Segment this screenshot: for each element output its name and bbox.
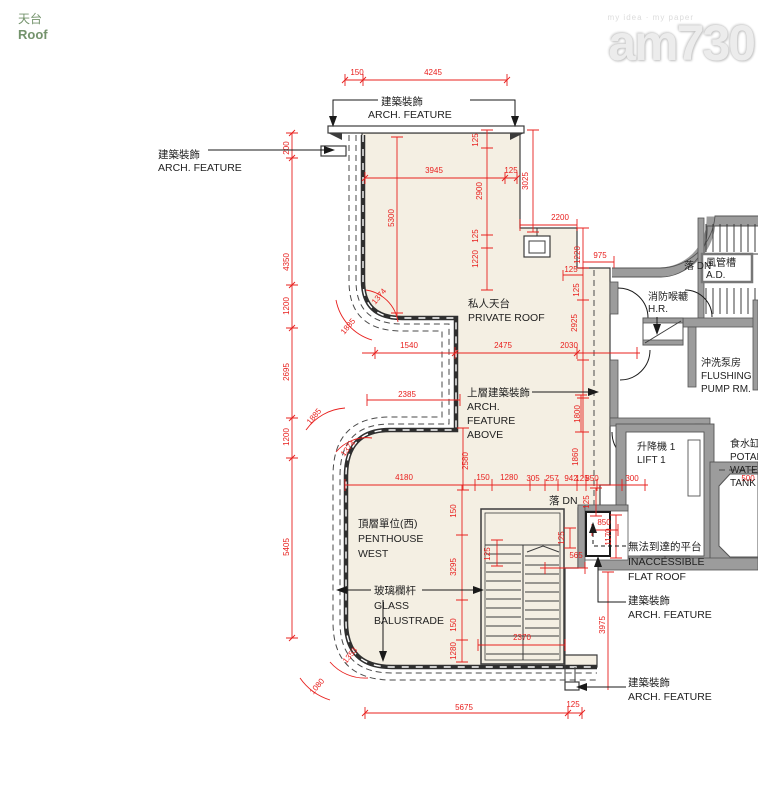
dimension-label: 1200 — [282, 297, 291, 315]
dimension-label: 2900 — [475, 182, 484, 200]
floor-plan-page: 天台 Roof my idea · my paper am730 — [0, 0, 758, 788]
svg-text:BALUSTRADE: BALUSTRADE — [374, 615, 444, 627]
dimension-label: 5300 — [387, 209, 396, 227]
svg-text:LIFT 1: LIFT 1 — [637, 455, 666, 466]
dimension-label: 1800 — [573, 405, 582, 423]
dimension-label: 1220 — [573, 246, 582, 264]
dimension-label: 5405 — [282, 538, 291, 556]
svg-text:PUMP RM.: PUMP RM. — [701, 384, 751, 395]
dimension-label: 305 — [526, 474, 540, 483]
svg-text:ARCH. FEATURE: ARCH. FEATURE — [628, 691, 712, 703]
dimension-label: 2475 — [494, 341, 512, 350]
svg-text:TANK: TANK — [730, 478, 756, 489]
dimension-label: 1860 — [571, 448, 580, 466]
dimension-label: 2925 — [570, 314, 579, 332]
svg-text:INACCESSIBLE: INACCESSIBLE — [628, 556, 704, 568]
dimension-label: 125 — [564, 265, 578, 274]
arch-feature-bottom-label: 建築裝飾 — [628, 676, 670, 689]
dimension-label: 125 — [557, 531, 566, 545]
dimension-label: 150 — [449, 618, 458, 632]
dimension-label: 2695 — [282, 363, 291, 381]
dimension-label: 125 — [471, 229, 480, 243]
dimension-label: 4350 — [282, 253, 291, 271]
svg-text:WATER: WATER — [730, 465, 758, 476]
inaccessible-flat-roof — [578, 505, 628, 568]
svg-text:FEATURE: FEATURE — [467, 415, 515, 427]
svg-text:FLUSHING: FLUSHING — [701, 371, 752, 382]
arch-feature-mid-label: 建築裝飾 — [628, 594, 670, 607]
dimension-label: 2030 — [560, 341, 578, 350]
dimension-label: 1280 — [449, 642, 458, 660]
dimension-label: 200 — [282, 141, 291, 155]
dimension-label: 300 — [625, 474, 639, 483]
roof-plan-drawing: 1504245200435012002695120054051253945125… — [0, 0, 758, 788]
down-dn-penthouse-label: 落 DN — [549, 495, 578, 507]
svg-text:A.D.: A.D. — [706, 270, 725, 281]
dimension-label: 1170 — [604, 528, 613, 546]
flushing-pump-label: 沖洗泵房 — [701, 356, 741, 369]
dimension-label: 1885 — [339, 316, 358, 336]
glass-balustrade-label: 玻璃欄杆 — [374, 584, 416, 597]
dimension-label: 125 — [483, 547, 492, 561]
dimension-label: 125 — [582, 495, 591, 509]
inaccessible-label: 無法到達的平台 — [628, 540, 702, 553]
dimension-label: 150 — [350, 68, 364, 77]
air-duct-label: 風管槽 — [706, 256, 736, 269]
dimension-label: 1080 — [308, 676, 327, 696]
dimension-label: 565 — [569, 551, 583, 560]
hose-reel-label: 消防喉轆 — [648, 290, 688, 303]
svg-text:GLASS: GLASS — [374, 600, 409, 612]
private-roof-label: 私人天台 — [468, 297, 510, 310]
svg-text:PENTHOUSE: PENTHOUSE — [358, 533, 423, 545]
arch-feature-above-label: 上層建築裝飾 — [467, 386, 530, 399]
hose-reel-closet — [643, 318, 683, 345]
svg-text:ARCH.: ARCH. — [467, 401, 500, 413]
dimension-label: 2200 — [551, 213, 569, 222]
dimension-label: 1280 — [500, 473, 518, 482]
dimension-label: 2385 — [398, 390, 416, 399]
dimension-label: 850 — [585, 474, 599, 483]
dimension-label: 125 — [471, 133, 480, 147]
dimension-label: 2370 — [513, 633, 531, 642]
dimension-label: 3975 — [598, 616, 607, 634]
dimension-label: 2580 — [461, 452, 470, 470]
dimension-label: 125 — [572, 283, 581, 297]
svg-text:ARCH. FEATURE: ARCH. FEATURE — [628, 609, 712, 621]
lift-label: 升降機 1 — [637, 440, 676, 453]
svg-text:ARCH. FEATURE: ARCH. FEATURE — [368, 109, 452, 121]
svg-text:FLAT ROOF: FLAT ROOF — [628, 571, 686, 583]
water-tank-label: 食水缸 — [730, 437, 758, 450]
arch-feature-left-label: 建築裝飾 — [158, 148, 200, 161]
dimension-label: 1220 — [471, 250, 480, 268]
dimension-label: 4180 — [395, 473, 413, 482]
dimension-label: 3945 — [425, 166, 443, 175]
svg-text:ARCH. FEATURE: ARCH. FEATURE — [158, 162, 242, 174]
dimension-label: 125 — [504, 166, 518, 175]
dimension-label: 150 — [476, 473, 490, 482]
dimension-label: 257 — [545, 474, 559, 483]
arch-feature-top-label: 建築裝飾 — [381, 95, 423, 108]
dimension-label: 125 — [566, 700, 580, 709]
dimension-label: 150 — [449, 504, 458, 518]
svg-text:ABOVE: ABOVE — [467, 429, 503, 441]
svg-text:POTABLE: POTABLE — [730, 452, 758, 463]
dimension-label: 5675 — [455, 703, 473, 712]
dimension-label: 3025 — [521, 172, 530, 190]
svg-text:H.R.: H.R. — [648, 304, 668, 315]
dimension-label: 850 — [597, 518, 611, 527]
dimension-label: 1200 — [282, 428, 291, 446]
dimension-label: 1540 — [400, 341, 418, 350]
dimension-label: 4245 — [424, 68, 442, 77]
dimension-label: 3295 — [449, 558, 458, 576]
svg-text:PRIVATE ROOF: PRIVATE ROOF — [468, 312, 545, 324]
dimension-label: 975 — [593, 251, 607, 260]
penthouse-west-label: 頂層單位(西) — [358, 517, 418, 530]
svg-text:WEST: WEST — [358, 548, 389, 560]
